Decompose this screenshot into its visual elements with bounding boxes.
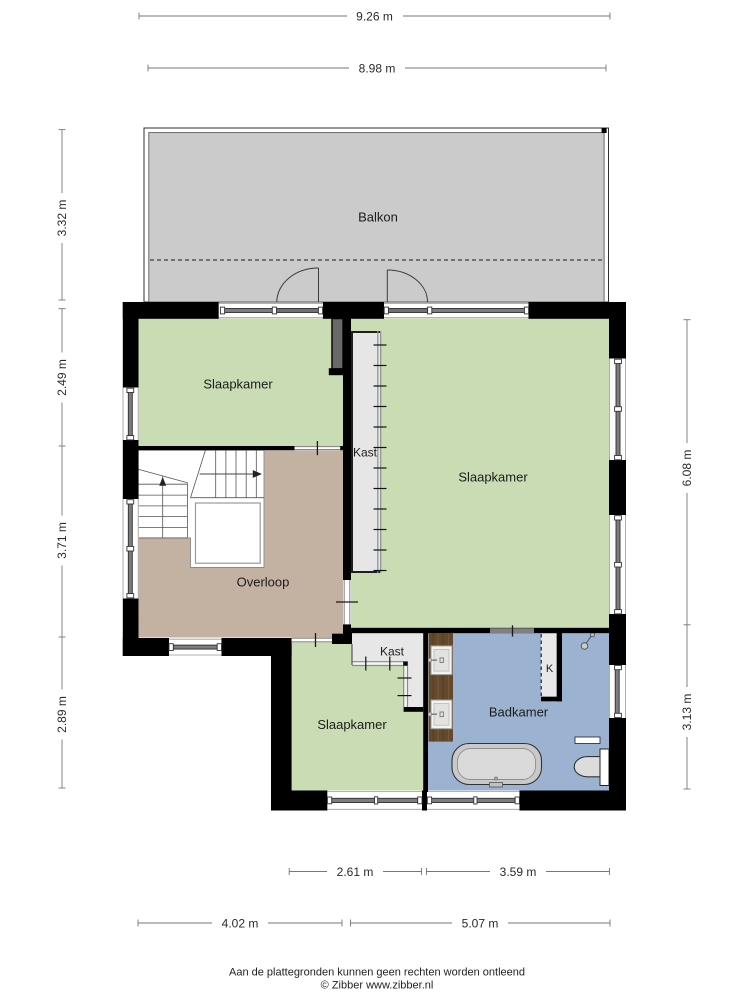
- svg-text:2.61 m: 2.61 m: [337, 865, 374, 879]
- svg-text:© Zibber www.zibber.nl: © Zibber www.zibber.nl: [321, 980, 434, 992]
- svg-text:K: K: [546, 663, 554, 675]
- svg-text:9.26 m: 9.26 m: [356, 10, 393, 24]
- svg-text:8.98 m: 8.98 m: [359, 62, 396, 76]
- svg-text:5.07 m: 5.07 m: [462, 917, 499, 931]
- svg-text:3.13 m: 3.13 m: [680, 694, 694, 731]
- svg-text:Slaapkamer: Slaapkamer: [317, 717, 387, 732]
- svg-text:6.08 m: 6.08 m: [680, 450, 694, 487]
- svg-text:3.71 m: 3.71 m: [55, 522, 69, 559]
- svg-text:Aan de plattegronden kunnen ge: Aan de plattegronden kunnen geen rechten…: [229, 967, 525, 979]
- svg-text:Kast: Kast: [380, 645, 405, 659]
- svg-text:3.32 m: 3.32 m: [55, 200, 69, 237]
- svg-text:Overloop: Overloop: [237, 575, 290, 590]
- svg-text:Balkon: Balkon: [358, 210, 398, 225]
- svg-text:4.02 m: 4.02 m: [222, 917, 259, 931]
- svg-text:Slaapkamer: Slaapkamer: [458, 470, 528, 485]
- svg-text:Kast: Kast: [353, 446, 378, 460]
- svg-text:Badkamer: Badkamer: [489, 705, 549, 720]
- svg-text:Slaapkamer: Slaapkamer: [203, 377, 273, 392]
- svg-text:3.59 m: 3.59 m: [500, 865, 537, 879]
- svg-text:2.49 m: 2.49 m: [55, 359, 69, 396]
- svg-text:2.89 m: 2.89 m: [55, 696, 69, 733]
